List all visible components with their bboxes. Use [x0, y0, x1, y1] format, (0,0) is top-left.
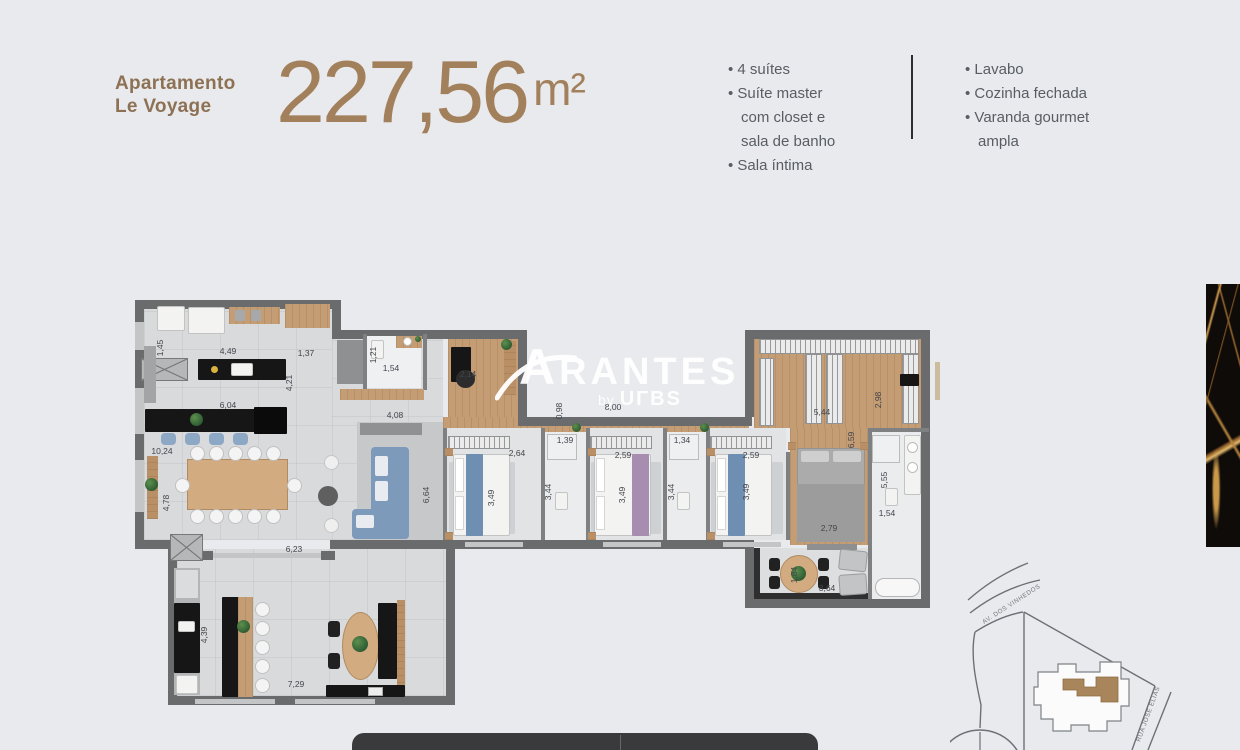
- dimension-label: 4,78: [161, 495, 171, 512]
- fridge: [176, 570, 198, 598]
- dining-chair: [266, 509, 281, 524]
- stool: [255, 678, 270, 693]
- dining-chair: [266, 446, 281, 461]
- window: [295, 699, 375, 704]
- street-line: [973, 632, 981, 728]
- dimension-label: 6,59: [846, 432, 856, 449]
- plant: [700, 423, 709, 432]
- dimension-label: 6,23: [286, 544, 303, 554]
- terrace-chair: [769, 558, 780, 571]
- pillow: [801, 451, 829, 462]
- fruit-bowl: [211, 366, 218, 373]
- bottom-carousel-bar[interactable]: [352, 733, 818, 750]
- toilet: [885, 488, 898, 506]
- toilet: [677, 492, 690, 510]
- kitchen-sink-unit: [157, 306, 185, 331]
- dining-chair: [209, 509, 224, 524]
- dimension-label: 6,04: [220, 400, 237, 410]
- closet-wardrobe: [902, 354, 919, 424]
- stove: [254, 407, 287, 434]
- chair: [328, 653, 340, 669]
- sofa-cushion: [356, 515, 374, 528]
- island-sink: [231, 363, 253, 376]
- title-line-1: Apartamento: [115, 72, 235, 95]
- dimension-label: 2,14: [460, 369, 477, 379]
- dining-table: [187, 459, 288, 510]
- wall: [745, 599, 930, 608]
- side-table: [324, 455, 339, 470]
- terrace-chair: [818, 558, 829, 571]
- dimension-label: 4,49: [220, 346, 237, 356]
- bed-throw: [466, 454, 483, 536]
- sink: [178, 621, 195, 632]
- bar-stool: [161, 433, 176, 445]
- pillow: [717, 496, 726, 530]
- dimension-label: 4,39: [199, 627, 209, 644]
- street-label-right: RUA JOSÉ ELIAS: [1135, 686, 1162, 743]
- wall: [786, 452, 790, 540]
- oven: [176, 675, 198, 694]
- arantes-watermark: ARANTES by UΓBS: [495, 342, 855, 417]
- pillow: [455, 458, 464, 492]
- shaft: [337, 340, 363, 384]
- page-title: Apartamento Le Voyage: [115, 72, 235, 118]
- feature-list-right: Lavabo Cozinha fechada Varanda gourmet a…: [965, 58, 1115, 154]
- wardrobe: [448, 436, 510, 449]
- sliding-door-glass: [213, 553, 321, 558]
- cooktop: [235, 310, 245, 321]
- dimension-label: 1,45: [155, 340, 165, 357]
- window: [723, 542, 781, 547]
- console: [340, 389, 424, 400]
- sink: [403, 337, 412, 346]
- wardrobe: [710, 436, 772, 449]
- bar-counter-top: [238, 597, 253, 697]
- shower: [872, 435, 900, 463]
- window: [465, 542, 523, 547]
- brand-initial: A: [519, 339, 559, 395]
- nightstand: [445, 532, 453, 540]
- window: [135, 388, 144, 434]
- marble-decor-image: [1206, 284, 1240, 547]
- cooktop: [251, 310, 261, 321]
- plant: [145, 478, 158, 491]
- dimension-label: 1,34: [674, 435, 691, 445]
- coffee-table: [318, 486, 338, 506]
- feature-divider: [911, 55, 913, 139]
- wall: [330, 540, 455, 549]
- stool: [255, 640, 270, 655]
- feature-item: Lavabo: [965, 58, 1115, 82]
- dimension-label: 3,49: [741, 484, 751, 501]
- brand-urbs: UΓBS: [620, 388, 682, 410]
- wall: [745, 330, 930, 339]
- dimension-label: 1,39: [557, 435, 574, 445]
- nightstand: [588, 532, 596, 540]
- wall: [332, 330, 527, 339]
- apartment-area: 227,56m²: [276, 46, 585, 138]
- dimension-label: 1,54: [383, 363, 400, 373]
- dimension-label: 2,59: [743, 450, 760, 460]
- nightstand: [860, 442, 868, 450]
- side-table: [324, 518, 339, 533]
- wall: [446, 548, 455, 705]
- window: [135, 460, 144, 512]
- dining-chair: [287, 478, 302, 493]
- brand-rest: RANTES: [559, 351, 739, 393]
- closet-counter: [900, 374, 919, 386]
- plant: [572, 423, 581, 432]
- dimension-label: 6,64: [421, 487, 431, 504]
- wall: [443, 428, 447, 540]
- title-line-2: Le Voyage: [115, 95, 235, 118]
- bed-throw: [632, 454, 649, 536]
- wall: [423, 334, 427, 390]
- area-value: 227,56: [276, 42, 527, 141]
- dining-chair: [228, 509, 243, 524]
- feature-item: Varanda gourmet ampla: [965, 106, 1115, 154]
- nightstand: [707, 448, 715, 456]
- bar-divider: [620, 735, 621, 750]
- area-unit: m²: [533, 63, 585, 115]
- feature-item: 4 suítes: [728, 58, 853, 82]
- dimension-label: 1,37: [298, 348, 315, 358]
- feature-item: Cozinha fechada: [965, 82, 1115, 106]
- grill: [368, 687, 383, 696]
- nightstand: [445, 448, 453, 456]
- dimension-label: 3,49: [617, 487, 627, 504]
- dimension-label: 7,29: [288, 679, 305, 689]
- dining-chair: [209, 446, 224, 461]
- window: [195, 699, 275, 704]
- kitchen-shelf: [285, 304, 330, 328]
- wall: [745, 540, 754, 608]
- gourmet-counter-right: [378, 603, 397, 679]
- kitchen-fridge: [188, 307, 225, 334]
- sink: [907, 442, 918, 453]
- wall: [321, 551, 335, 560]
- dining-chair: [247, 509, 262, 524]
- pillow: [596, 458, 605, 492]
- pillow: [833, 451, 861, 462]
- grill-counter: [326, 685, 405, 697]
- dining-chair: [247, 446, 262, 461]
- pillow: [717, 458, 726, 492]
- dimension-label: 4,08: [387, 410, 404, 420]
- brand-byline: by UΓBS: [598, 388, 682, 411]
- dimension-label: 1,84: [789, 567, 799, 584]
- nightstand: [588, 448, 596, 456]
- dimension-label: 3,44: [666, 484, 676, 501]
- chair: [328, 621, 340, 637]
- bar-stool: [233, 433, 248, 445]
- feature-list-left: 4 suítes Suíte master com closet e sala …: [728, 58, 853, 178]
- dimension-label: 5,55: [879, 472, 889, 489]
- bar-stool: [209, 433, 224, 445]
- dimension-label: 1,21: [368, 347, 378, 364]
- floor-gourmet: [177, 549, 446, 696]
- plant: [352, 636, 368, 652]
- wall: [921, 330, 930, 608]
- stool: [255, 602, 270, 617]
- pillow: [455, 496, 464, 530]
- dimension-label: 2,64: [509, 448, 526, 458]
- dimension-label: 3,64: [819, 583, 836, 593]
- stairs: [170, 534, 203, 561]
- feature-item: Sala íntima: [728, 154, 853, 178]
- wall: [868, 428, 929, 432]
- dimension-label: 2,98: [873, 392, 883, 409]
- nightstand: [788, 442, 796, 450]
- dining-chair: [190, 509, 205, 524]
- dining-chair: [190, 446, 205, 461]
- lounge-chair: [838, 573, 867, 596]
- wardrobe: [590, 436, 652, 449]
- sofa-cushion: [375, 481, 388, 501]
- nightstand: [707, 532, 715, 540]
- compass-icon: [950, 730, 1024, 750]
- sofa-cushion: [375, 456, 388, 476]
- plant: [237, 620, 250, 633]
- by-label: by: [598, 392, 615, 408]
- dimension-label: 4,21: [284, 375, 294, 392]
- counter-wood-edge: [397, 600, 405, 697]
- dimension-label: 1,54: [879, 508, 896, 518]
- terrace-rail: [754, 548, 760, 599]
- window: [603, 542, 661, 547]
- dimension-label: 3,49: [486, 490, 496, 507]
- tv-panel: [360, 423, 422, 435]
- stool: [255, 621, 270, 636]
- dimension-label: 3,44: [543, 484, 553, 501]
- dining-chair: [228, 446, 243, 461]
- dimension-label: 2,79: [821, 523, 838, 533]
- bathtub: [875, 578, 920, 597]
- kitchen-counter: [145, 409, 264, 432]
- ledge: [935, 362, 940, 400]
- bed-blanket: [797, 484, 865, 542]
- sink: [907, 462, 918, 473]
- dining-chair: [175, 478, 190, 493]
- dimension-label: 10,24: [151, 446, 172, 456]
- pillow: [596, 496, 605, 530]
- gourmet-counter: [174, 603, 200, 673]
- dimension-label: 2,59: [615, 450, 632, 460]
- toilet: [555, 492, 568, 510]
- lounge-chair: [838, 549, 868, 573]
- bar-stool: [185, 433, 200, 445]
- terrace-chair: [769, 576, 780, 589]
- site-plan: AV. DOS VINHEDOS RUA JOSÉ ELIAS: [950, 550, 1240, 750]
- feature-item: Suíte master com closet e sala de banho: [728, 82, 853, 154]
- plant: [190, 413, 203, 426]
- window: [135, 322, 144, 350]
- plant: [415, 336, 421, 342]
- stool: [255, 659, 270, 674]
